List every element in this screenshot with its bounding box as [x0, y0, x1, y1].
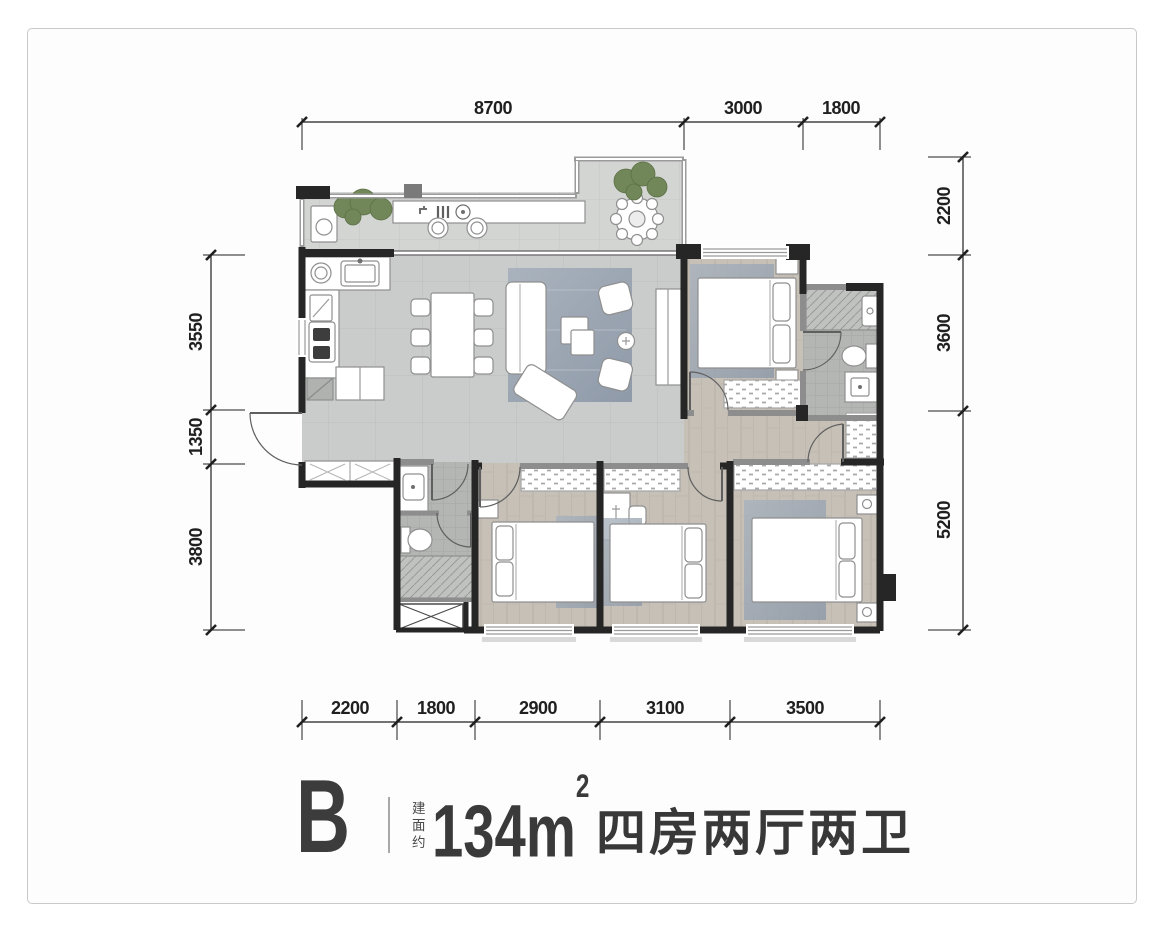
dining-chair	[474, 329, 493, 346]
dim-label: 3600	[934, 313, 954, 352]
shower-area	[398, 556, 474, 598]
dim-label: 3000	[724, 98, 763, 118]
dimension-bottom: 2200 1800 2900 3100 3500	[297, 698, 885, 740]
bar-stool	[467, 218, 487, 238]
dining-chair	[474, 299, 493, 316]
dim-label: 3550	[186, 312, 206, 351]
dining-chair	[411, 299, 430, 316]
kitchen-window	[296, 318, 308, 357]
rooms-label: 四房两厅两卫	[596, 793, 914, 865]
dim-label: 8700	[474, 98, 513, 118]
dim-label: 2900	[519, 698, 558, 718]
kitchen-basin	[311, 263, 331, 283]
railing-post	[404, 184, 422, 198]
dim-label: 1800	[822, 98, 861, 118]
dim-label: 3500	[786, 698, 825, 718]
outdoor-kitchen-counter	[393, 201, 585, 223]
pillow	[839, 561, 855, 597]
nightstand	[776, 258, 798, 274]
bedroom-s-window	[610, 624, 702, 642]
dining-table	[431, 293, 474, 377]
shoe-cabinet	[305, 461, 395, 483]
equipment-platform	[399, 604, 463, 629]
toilet-bowl	[408, 529, 432, 551]
pillow	[496, 562, 513, 596]
dimension-top: 8700 3000 1800	[297, 98, 885, 150]
area-exponent: 2	[576, 768, 590, 804]
dim-label: 3100	[646, 698, 685, 718]
pillow	[685, 564, 702, 598]
area-prefix-label: 建面约	[412, 801, 428, 852]
sofa	[506, 282, 546, 374]
title-block: B 建面约 134m2 四房两厅两卫	[296, 775, 936, 875]
bar-stool	[428, 218, 448, 238]
area-value: 134m2	[432, 783, 589, 869]
pillow	[773, 283, 790, 321]
floorplan-page: 8700 3000 1800 2200 1800 2900 3100 3500 …	[0, 0, 1166, 933]
dining-chair	[411, 357, 430, 374]
dim-label: 2200	[934, 186, 954, 225]
dining-set	[411, 293, 493, 377]
bedroom-ne-window	[701, 246, 789, 259]
dimension-right: 2200 3600 5200	[928, 152, 971, 635]
nightstand	[857, 603, 878, 622]
dim-label: 3800	[186, 527, 206, 566]
sink-faucet	[358, 259, 363, 264]
master-window	[744, 624, 856, 642]
cooktop-burner	[313, 328, 330, 341]
dimension-left: 3550 1350 3800	[186, 250, 245, 635]
washing-machine	[311, 206, 337, 242]
entry-door	[250, 413, 302, 465]
nightstand	[857, 495, 878, 514]
dim-label: 1350	[186, 417, 206, 456]
pillow	[839, 523, 855, 559]
title-divider	[388, 797, 390, 853]
vanity-drain	[858, 385, 862, 389]
pillow	[773, 325, 790, 363]
toilet-tank	[866, 344, 877, 368]
unit-label: B	[296, 769, 350, 865]
dim-label: 2200	[331, 698, 370, 718]
burner-icon-center	[461, 210, 465, 214]
pillow	[496, 526, 513, 560]
dining-chair	[474, 357, 493, 374]
area-number: 134m	[432, 790, 576, 873]
wardrobe-ne	[724, 380, 802, 408]
vanity-drain	[411, 485, 415, 489]
dining-chair	[411, 329, 430, 346]
cooktop-burner	[313, 346, 330, 359]
round-patio-table	[611, 193, 664, 246]
pillow	[685, 528, 702, 562]
dim-label: 1800	[417, 698, 456, 718]
bath-sink	[862, 296, 879, 326]
wardrobe-master	[734, 464, 877, 490]
bedroom-sw-window	[482, 624, 576, 642]
coffee-table-tray	[571, 330, 594, 355]
dim-label: 5200	[934, 500, 954, 539]
toilet-bowl	[842, 346, 866, 366]
